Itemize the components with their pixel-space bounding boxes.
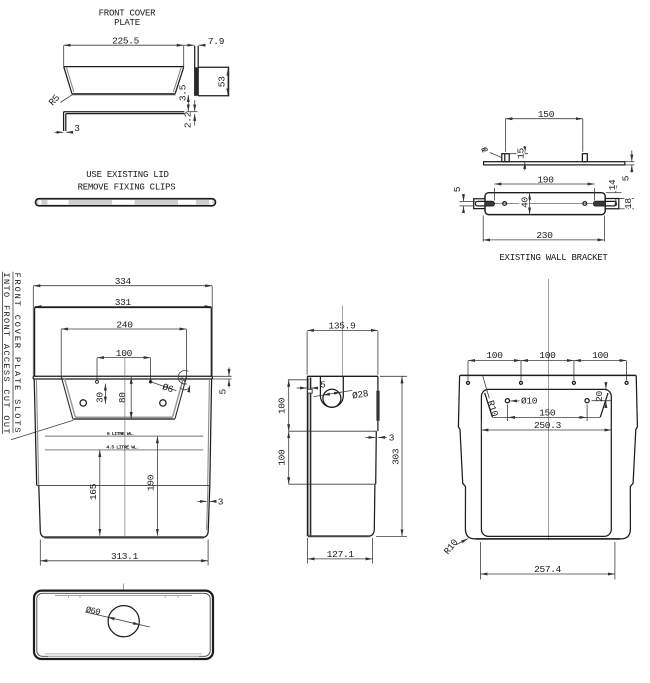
svg-text:3: 3 [74, 123, 80, 134]
svg-text:4.5 LITRE WL.: 4.5 LITRE WL. [106, 445, 138, 451]
svg-text:15: 15 [515, 148, 526, 159]
svg-text:190: 190 [146, 474, 157, 491]
svg-text:240: 240 [116, 319, 133, 330]
svg-text:FRONT COVER PLATE SLOTSINTO FR: FRONT COVER PLATE SLOTSINTO FRONT ACCESS… [1, 273, 22, 434]
svg-text:3.5: 3.5 [177, 84, 188, 101]
svg-text:100: 100 [592, 350, 609, 361]
svg-text:53: 53 [216, 76, 227, 87]
svg-text:40: 40 [519, 197, 530, 208]
svg-text:20: 20 [594, 391, 605, 402]
svg-text:331: 331 [115, 297, 132, 308]
svg-text:3: 3 [389, 432, 395, 443]
svg-text:5: 5 [218, 389, 229, 395]
svg-text:257.4: 257.4 [534, 564, 562, 575]
svg-text:7.9: 7.9 [208, 36, 225, 47]
svg-text:REMOVE FIXING CLIPS: REMOVE FIXING CLIPS [78, 183, 176, 193]
svg-text:230: 230 [536, 230, 553, 241]
svg-text:EXISTING WALL BRACKET: EXISTING WALL BRACKET [499, 253, 608, 263]
svg-text:100: 100 [116, 348, 133, 359]
svg-text:135.9: 135.9 [328, 321, 356, 332]
svg-text:250.3: 250.3 [534, 420, 562, 431]
svg-text:18: 18 [623, 198, 634, 209]
svg-text:3: 3 [218, 496, 224, 507]
svg-text:313.1: 313.1 [111, 551, 139, 562]
svg-text:100: 100 [539, 350, 556, 361]
svg-text:5: 5 [452, 186, 463, 192]
svg-text:165: 165 [88, 483, 99, 500]
svg-text:14: 14 [607, 179, 618, 190]
svg-text:Ø10: Ø10 [521, 396, 538, 407]
svg-text:100: 100 [276, 449, 287, 466]
svg-text:150: 150 [539, 408, 556, 419]
svg-text:225.5: 225.5 [112, 35, 140, 46]
svg-text:6 LITRE WL.: 6 LITRE WL. [107, 431, 134, 437]
svg-text:303: 303 [391, 448, 402, 465]
svg-text:2.2: 2.2 [183, 111, 194, 128]
svg-text:100: 100 [486, 350, 503, 361]
svg-text:80: 80 [117, 392, 128, 403]
svg-text:5: 5 [621, 175, 632, 181]
svg-text:150: 150 [538, 109, 555, 120]
svg-text:127.1: 127.1 [327, 549, 355, 560]
svg-text:190: 190 [537, 174, 554, 185]
svg-text:334: 334 [115, 276, 132, 287]
svg-text:PLATE: PLATE [114, 18, 140, 28]
svg-text:USE EXISTING LID: USE EXISTING LID [86, 170, 168, 180]
svg-text:100: 100 [276, 397, 287, 414]
svg-text:FRONT COVER: FRONT COVER [99, 9, 157, 19]
svg-text:30: 30 [94, 392, 105, 403]
